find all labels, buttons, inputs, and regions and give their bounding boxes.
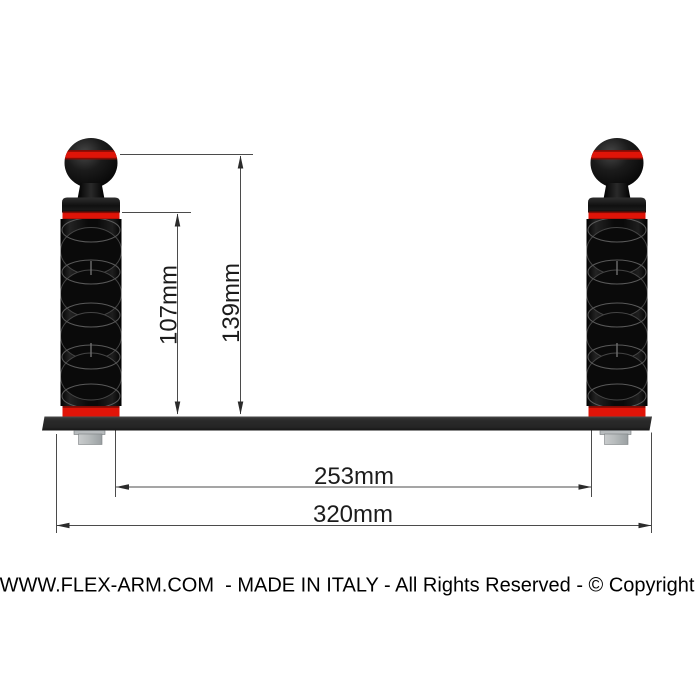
- dimension-arrow: [175, 214, 181, 227]
- dimension-label-139: 139mm: [218, 263, 245, 343]
- dimension-arrow: [238, 156, 244, 169]
- dimension-annotations: 107mm 139mm 253mm 320mm: [57, 155, 652, 534]
- dimension-arrow: [57, 523, 70, 529]
- dimension-label-253: 253mm: [314, 463, 394, 490]
- dimension-arrow: [238, 402, 244, 415]
- mounting-tray: [42, 417, 652, 431]
- flex-arm-left: [61, 138, 122, 417]
- bolt-body: [605, 434, 629, 445]
- dimension-arrow: [175, 402, 181, 415]
- flex-arm-right: [587, 138, 648, 417]
- product-diagram: 107mm 139mm 253mm 320mm WWW.FLEX-ARM.COM…: [0, 0, 700, 700]
- mounting-bolt-right: [600, 431, 631, 445]
- bolt-body: [79, 434, 103, 445]
- dimension-arrow: [639, 523, 652, 529]
- mounting-bolt-left: [74, 431, 105, 445]
- dimension-arrow: [579, 484, 592, 490]
- dimension-arrow: [116, 484, 129, 490]
- footer-copyright-text: WWW.FLEX-ARM.COM - MADE IN ITALY - All R…: [0, 575, 695, 597]
- dimension-label-320: 320mm: [313, 501, 393, 528]
- dimension-label-107: 107mm: [156, 265, 183, 345]
